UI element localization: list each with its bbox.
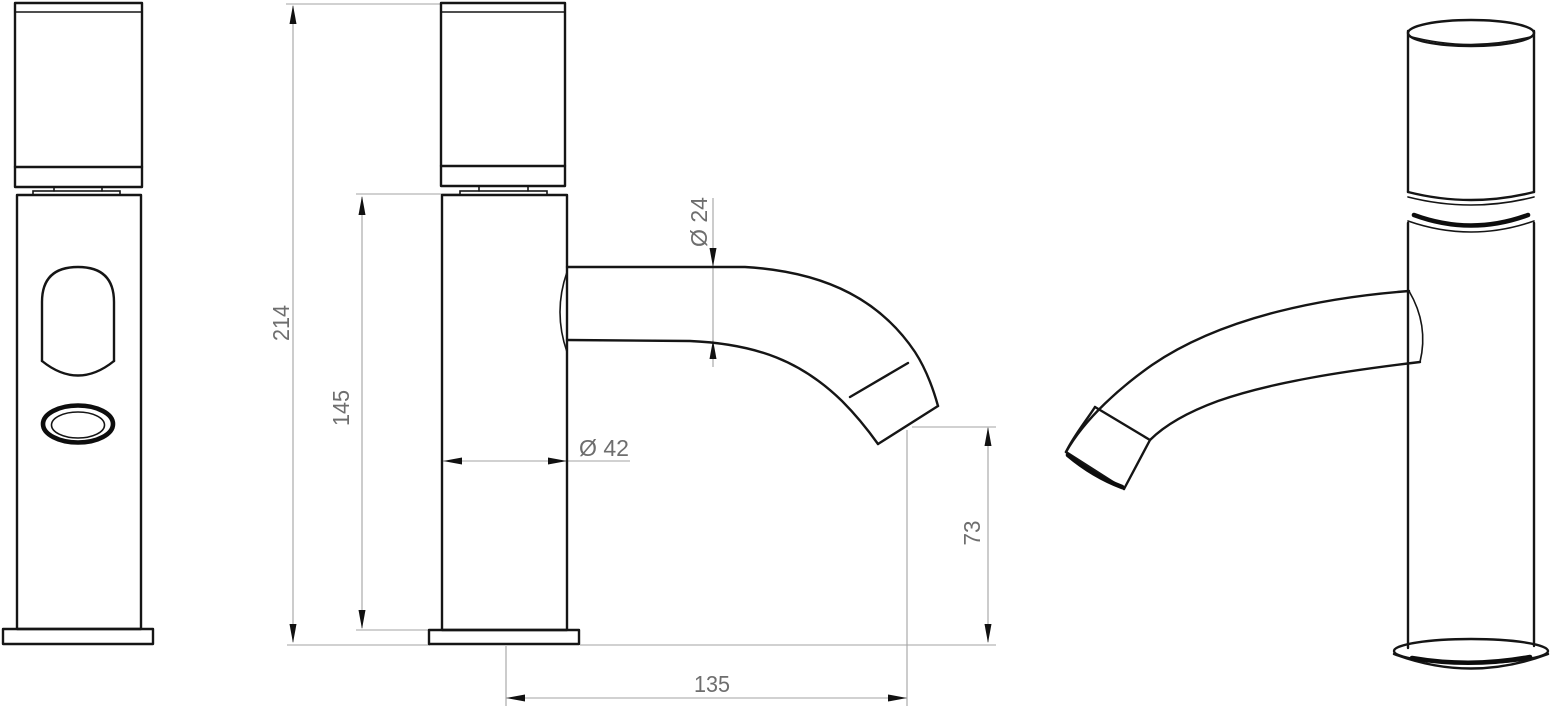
persp-tip-right-edge (1124, 440, 1150, 489)
front-base-flange (3, 629, 153, 644)
dim-label-outlet-clearance: 73 (959, 521, 985, 546)
side-spout-bottom-edge (567, 340, 878, 444)
side-body (442, 195, 567, 630)
front-spout-arch (42, 267, 114, 361)
persp-handle-top (1408, 20, 1534, 46)
front-outlet-inner (52, 412, 105, 438)
dim-label-total-height: 214 (268, 305, 294, 341)
arrow-214-top (290, 5, 297, 24)
persp-handle-bottom-arc (1408, 192, 1534, 200)
arrow-73-top (985, 427, 992, 446)
arrow-42-left (443, 458, 462, 465)
persp-aerator-line (1095, 407, 1150, 440)
arrow-135-right (888, 695, 907, 702)
side-view (429, 3, 938, 644)
front-spout-shoulder-arc (42, 361, 114, 376)
faucet-technical-drawing: 214 145 Ø 24 Ø 42 73 135 (0, 0, 1550, 707)
persp-dark-ring (1414, 215, 1528, 226)
persp-base-shade-arc (1412, 657, 1530, 663)
arrow-145-top (359, 196, 366, 215)
dim-label-body-diameter: Ø 42 (579, 435, 629, 461)
front-view (3, 3, 153, 644)
arrow-214-bottom (290, 624, 297, 643)
arrow-42-right (548, 458, 567, 465)
persp-spout-bottom-edge (1150, 362, 1420, 440)
side-base-flange (429, 630, 579, 644)
dimension-lines (286, 4, 996, 706)
arrow-24-top (710, 248, 717, 267)
dim-label-upper-body-height: 145 (328, 390, 354, 426)
front-outlet-ring (43, 406, 113, 443)
side-spout-top-edge (567, 267, 938, 406)
dimension-arrows (290, 5, 992, 702)
side-handle (441, 3, 565, 186)
dim-label-spout-diameter: Ø 24 (686, 197, 712, 247)
arrow-73-bottom (985, 624, 992, 643)
arrow-145-bottom (359, 610, 366, 629)
front-handle (15, 3, 142, 187)
side-aerator-line (850, 363, 908, 397)
dim-label-spout-reach: 135 (694, 671, 730, 697)
persp-spout-junction-arc (1409, 291, 1423, 362)
persp-spout-top-edge (1066, 291, 1409, 452)
persp-tip-left-edge (1066, 407, 1095, 452)
drawing-sheet: 214 145 Ø 24 Ø 42 73 135 (0, 0, 1550, 707)
perspective-view (1066, 20, 1548, 669)
side-outlet-face (878, 406, 938, 444)
arrow-135-left (506, 695, 525, 702)
dimension-labels: 214 145 Ø 24 Ø 42 73 135 (268, 197, 985, 697)
